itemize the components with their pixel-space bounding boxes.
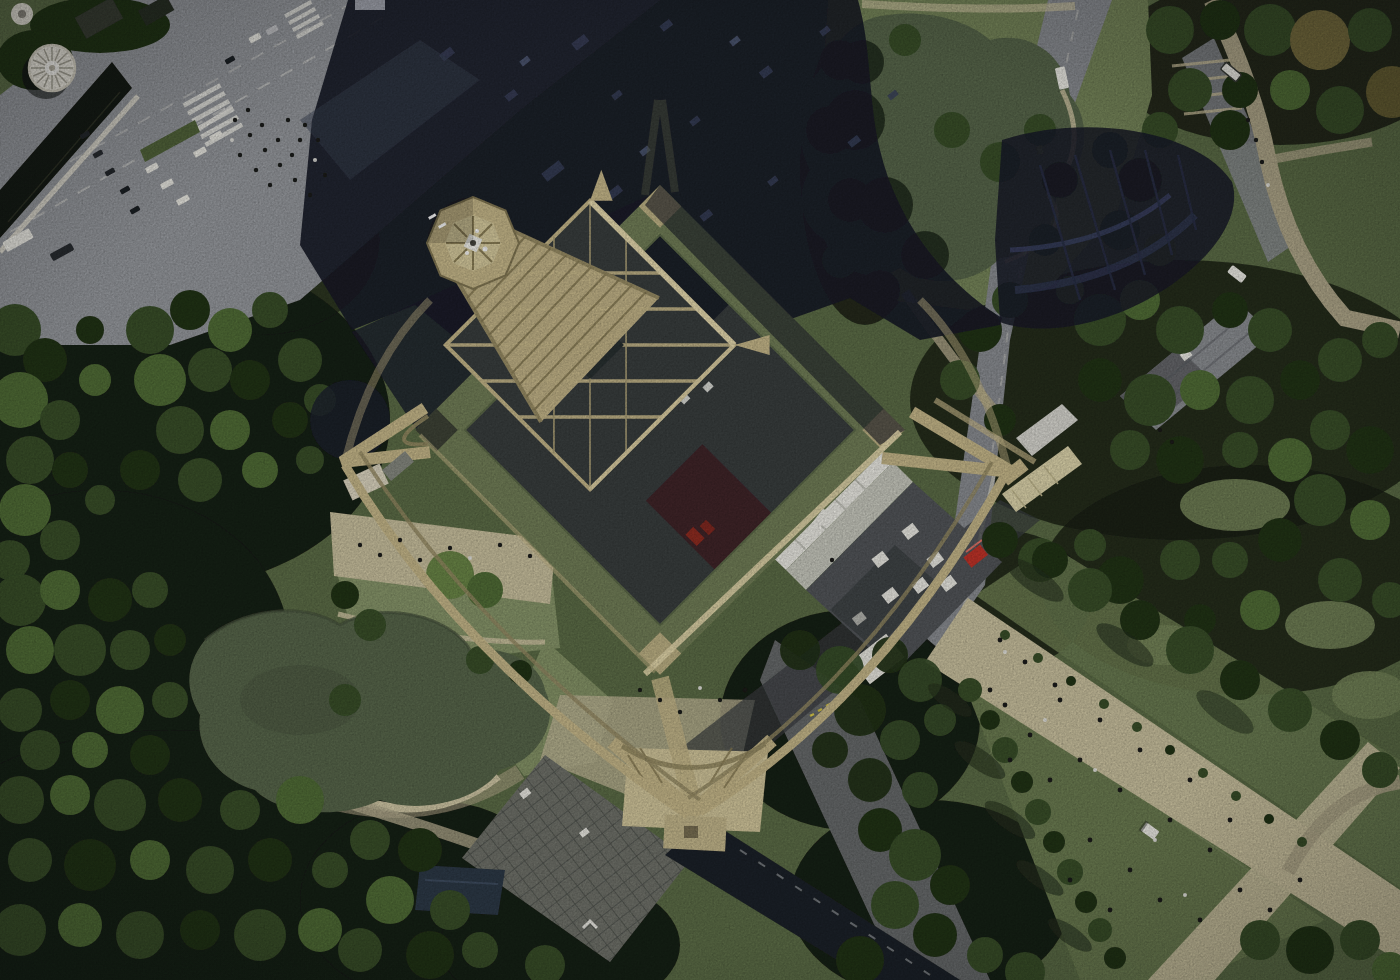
vignette xyxy=(0,0,1400,980)
satellite-map-canvas[interactable] xyxy=(0,0,1400,980)
aerial-scene xyxy=(0,0,1400,980)
